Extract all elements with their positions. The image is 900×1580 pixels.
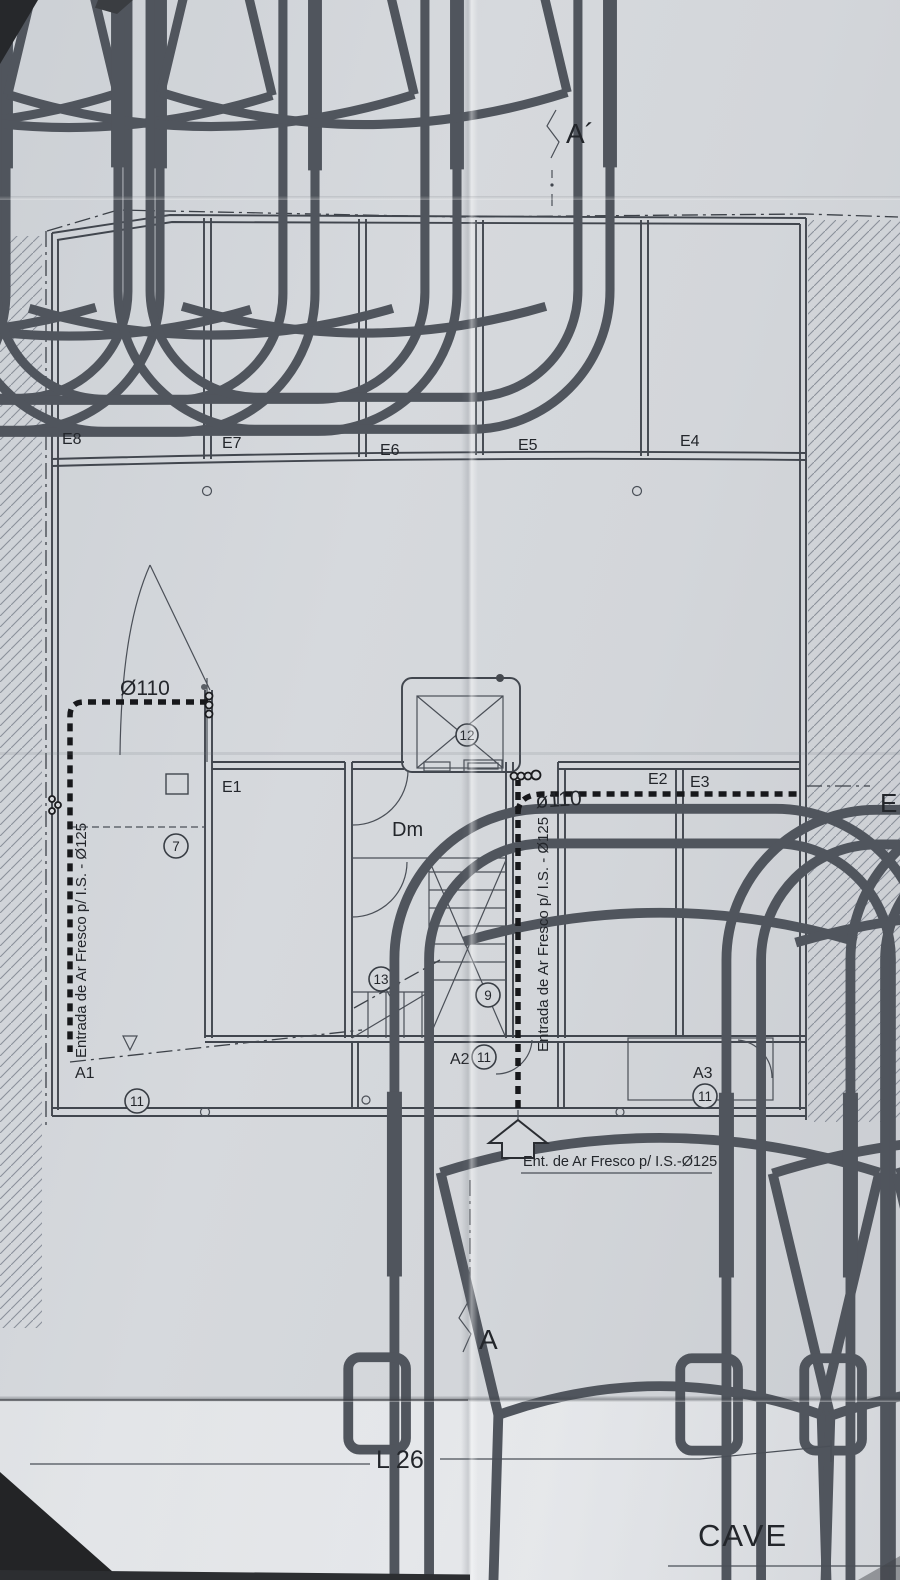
flow-arrow-small	[123, 1036, 137, 1050]
dimension-label: L 26	[376, 1446, 424, 1474]
door-arc-corridor	[496, 1040, 532, 1074]
stall-label-e7: E7	[222, 435, 242, 452]
sheet-title-label: CAVE	[698, 1518, 788, 1553]
section-label-e: E	[880, 788, 897, 818]
door-arc-a3	[738, 1040, 772, 1078]
room-label-a3: A3	[693, 1065, 713, 1082]
section-label-a: A	[479, 1324, 498, 1355]
door-arc-lobby	[353, 770, 408, 825]
room-label-a2: A2	[450, 1051, 470, 1068]
section-marker-top: A´	[547, 110, 594, 206]
pilaster	[166, 774, 188, 794]
room-label-dm: Dm	[392, 819, 423, 841]
callout-13: 13	[373, 972, 388, 987]
stall-label-e3: E3	[690, 774, 710, 791]
callout-9: 9	[484, 988, 492, 1003]
room-label-a1: A1	[75, 1065, 95, 1082]
stall-label-e8: E8	[62, 431, 82, 448]
callout-7: 7	[172, 839, 180, 854]
elevator: 12	[402, 674, 520, 772]
ent-label-bottom: Ent. de Ar Fresco p/ I.S.-Ø125	[523, 1154, 717, 1170]
boundary-dashdot	[46, 210, 898, 1300]
callout-11a: 11	[130, 1094, 144, 1109]
section-marker-bottom: A	[459, 1302, 498, 1355]
duct-dia-label-mid: ø110	[535, 787, 583, 813]
floor-plan-drawing: 12 13 9	[0, 0, 900, 1580]
callout-12: 12	[459, 728, 474, 743]
stall-label-e2: E2	[648, 771, 668, 788]
callout-11b: 11	[477, 1050, 491, 1065]
section-label-a-prime: A´	[566, 118, 594, 149]
stall-label-e4: E4	[680, 433, 700, 450]
duct-dot	[496, 674, 504, 682]
entrada-label-mid: Entrada de Ar Fresco p/ I.S. - Ø125	[535, 817, 552, 1052]
duct-dia-label-left: Ø110	[120, 677, 170, 700]
stall-label-e1: E1	[222, 779, 242, 796]
entrada-label-left: Entrada de Ar Fresco p/ I.S. - Ø125	[73, 823, 90, 1058]
stall-label-e5: E5	[518, 437, 538, 454]
stall-label-e6: E6	[380, 442, 400, 459]
callout-11c: 11	[698, 1089, 712, 1104]
blueprint-photo: 12 13 9	[0, 0, 900, 1580]
sheet-title: CAVE	[668, 1518, 900, 1566]
